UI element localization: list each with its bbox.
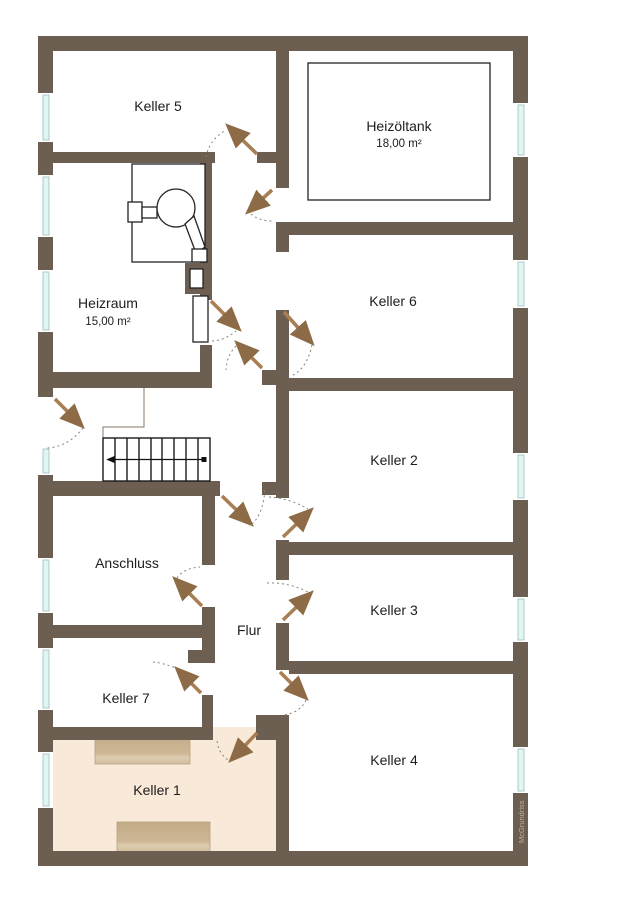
door-flur-icon [222,487,265,524]
room-area-heizraum: 15,00 m² [85,316,131,328]
window-icon [40,648,52,710]
door-keller3-icon [267,583,310,620]
window-icon [40,175,52,237]
window-icon [40,270,52,332]
door-heizraum-icon [207,301,238,341]
room-label-heizoeltank: Heizöltank [366,118,432,134]
window-icon [515,453,527,500]
floorplan-page: Keller 5 Heizöltank 18,00 m² Heizraum 15… [0,0,636,900]
window-icon [40,447,52,475]
door-anschluss-icon [176,567,202,606]
watermark-text: McGrundriss [517,800,526,843]
room-label-keller3: Keller 3 [370,602,418,618]
door-heizoeltank-icon [249,190,273,221]
room-label-flur: Flur [237,622,261,638]
room-label-heizraum: Heizraum [78,295,138,311]
room-label-keller6: Keller 6 [369,293,417,309]
chimney-icon [185,263,209,342]
room-label-keller2: Keller 2 [370,452,418,468]
windows-left [40,93,52,808]
door-exterior-icon [47,399,83,448]
room-area-heizoeltank: 18,00 m² [376,138,422,150]
window-icon [515,103,527,157]
window-icon [515,597,527,642]
room-label-keller5: Keller 5 [134,98,182,114]
door-keller7-icon [153,662,201,693]
door-keller2-icon [269,497,310,537]
room-label-keller4: Keller 4 [370,752,418,768]
window-icon [515,747,527,793]
door-corridor-passage-icon [226,344,262,370]
window-icon [40,93,52,142]
boiler-icon [128,164,207,262]
room-label-keller7: Keller 7 [102,690,150,706]
door-keller4-icon [280,672,306,715]
room-label-keller1: Keller 1 [133,782,181,798]
window-icon [40,752,52,808]
staircase [103,388,210,481]
keller1-shelf-bottom [117,822,210,852]
floorplan-drawing: Keller 5 Heizöltank 18,00 m² Heizraum 15… [0,0,636,900]
window-icon [40,558,52,613]
window-icon [515,260,527,308]
room-label-anschluss: Anschluss [95,555,159,571]
